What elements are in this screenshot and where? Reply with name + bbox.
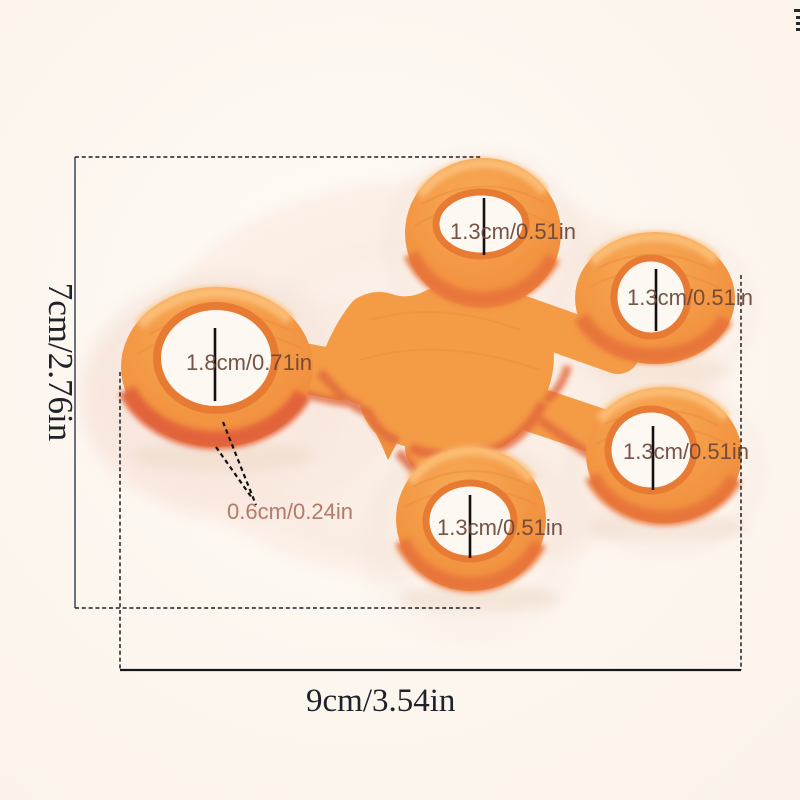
svg-text:0.6cm/0.24in: 0.6cm/0.24in <box>227 499 353 524</box>
svg-text:1.3cm/0.51in: 1.3cm/0.51in <box>623 439 749 464</box>
svg-text:9cm/3.54in: 9cm/3.54in <box>306 683 455 719</box>
svg-text:1.3cm/0.51in: 1.3cm/0.51in <box>627 285 753 310</box>
svg-text:1.3cm/0.51in: 1.3cm/0.51in <box>437 515 563 540</box>
svg-text:7cm/2.76in: 7cm/2.76in <box>41 283 80 441</box>
svg-text:1.8cm/0.71in: 1.8cm/0.71in <box>186 350 312 375</box>
svg-text:1.3cm/0.51in: 1.3cm/0.51in <box>450 219 576 244</box>
